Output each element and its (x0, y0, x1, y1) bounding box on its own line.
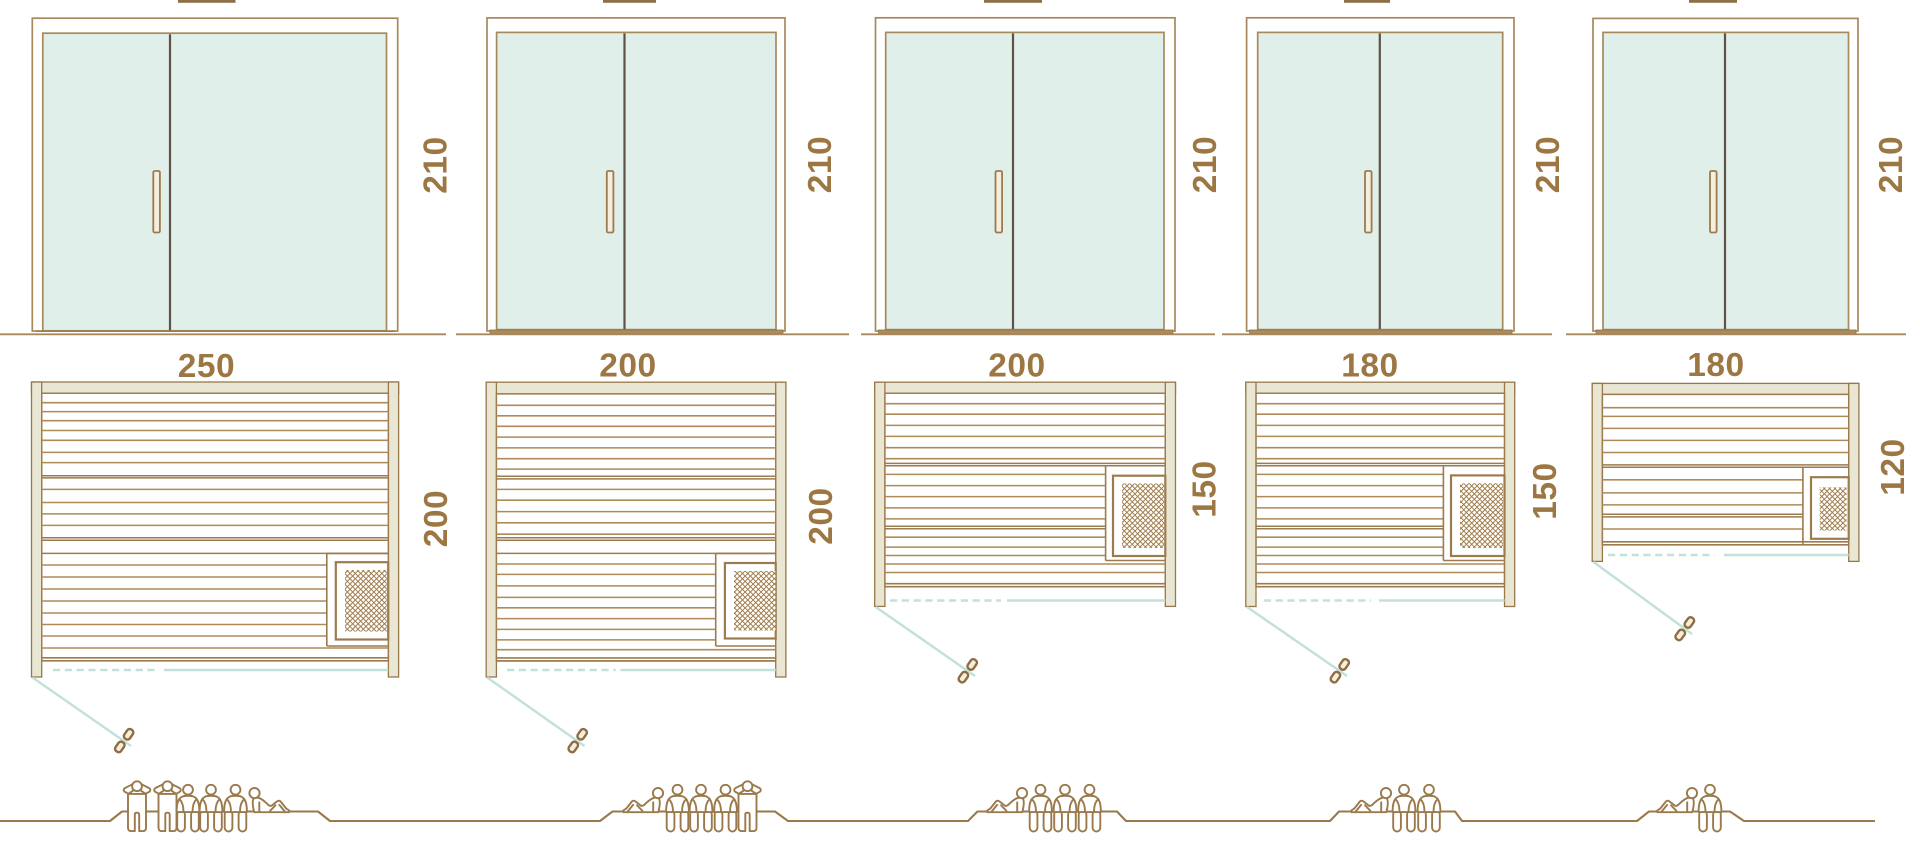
svg-text:200: 200 (988, 348, 1045, 385)
svg-text:210: 210 (418, 136, 455, 193)
svg-text:250: 250 (178, 348, 235, 385)
svg-text:200: 200 (599, 348, 656, 385)
svg-text:200: 200 (803, 487, 840, 544)
svg-text:210: 210 (802, 136, 839, 193)
svg-text:120: 120 (1875, 438, 1912, 495)
svg-text:180: 180 (1687, 347, 1744, 384)
svg-text:210: 210 (1187, 136, 1224, 193)
svg-text:150: 150 (1187, 460, 1224, 517)
svg-text:210: 210 (1873, 136, 1910, 193)
svg-text:210: 210 (1530, 136, 1567, 193)
svg-text:180: 180 (1341, 348, 1398, 385)
svg-text:200: 200 (418, 490, 455, 547)
svg-text:150: 150 (1527, 462, 1564, 519)
